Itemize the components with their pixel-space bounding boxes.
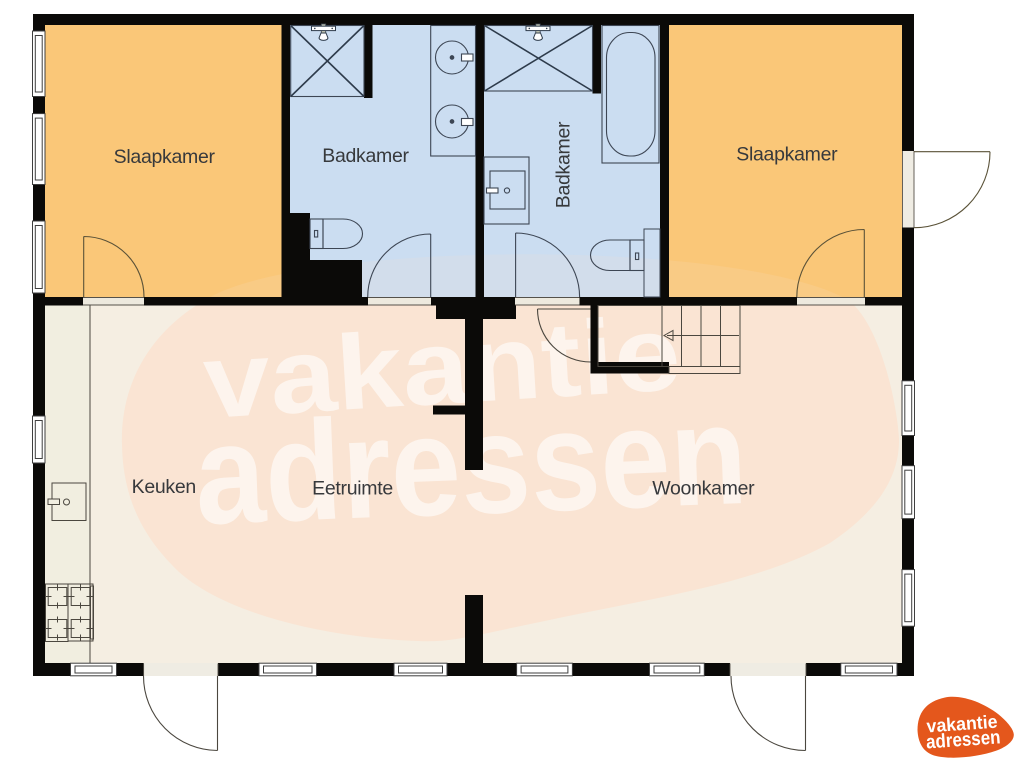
svg-text:Badkamer: Badkamer: [553, 121, 575, 208]
svg-text:Keuken: Keuken: [132, 476, 196, 498]
svg-text:Eetruimte: Eetruimte: [312, 478, 393, 500]
svg-text:Badkamer: Badkamer: [322, 145, 409, 167]
svg-text:Slaapkamer: Slaapkamer: [736, 144, 838, 166]
svg-text:Woonkamer: Woonkamer: [652, 478, 755, 500]
svg-text:Slaapkamer: Slaapkamer: [114, 146, 216, 168]
